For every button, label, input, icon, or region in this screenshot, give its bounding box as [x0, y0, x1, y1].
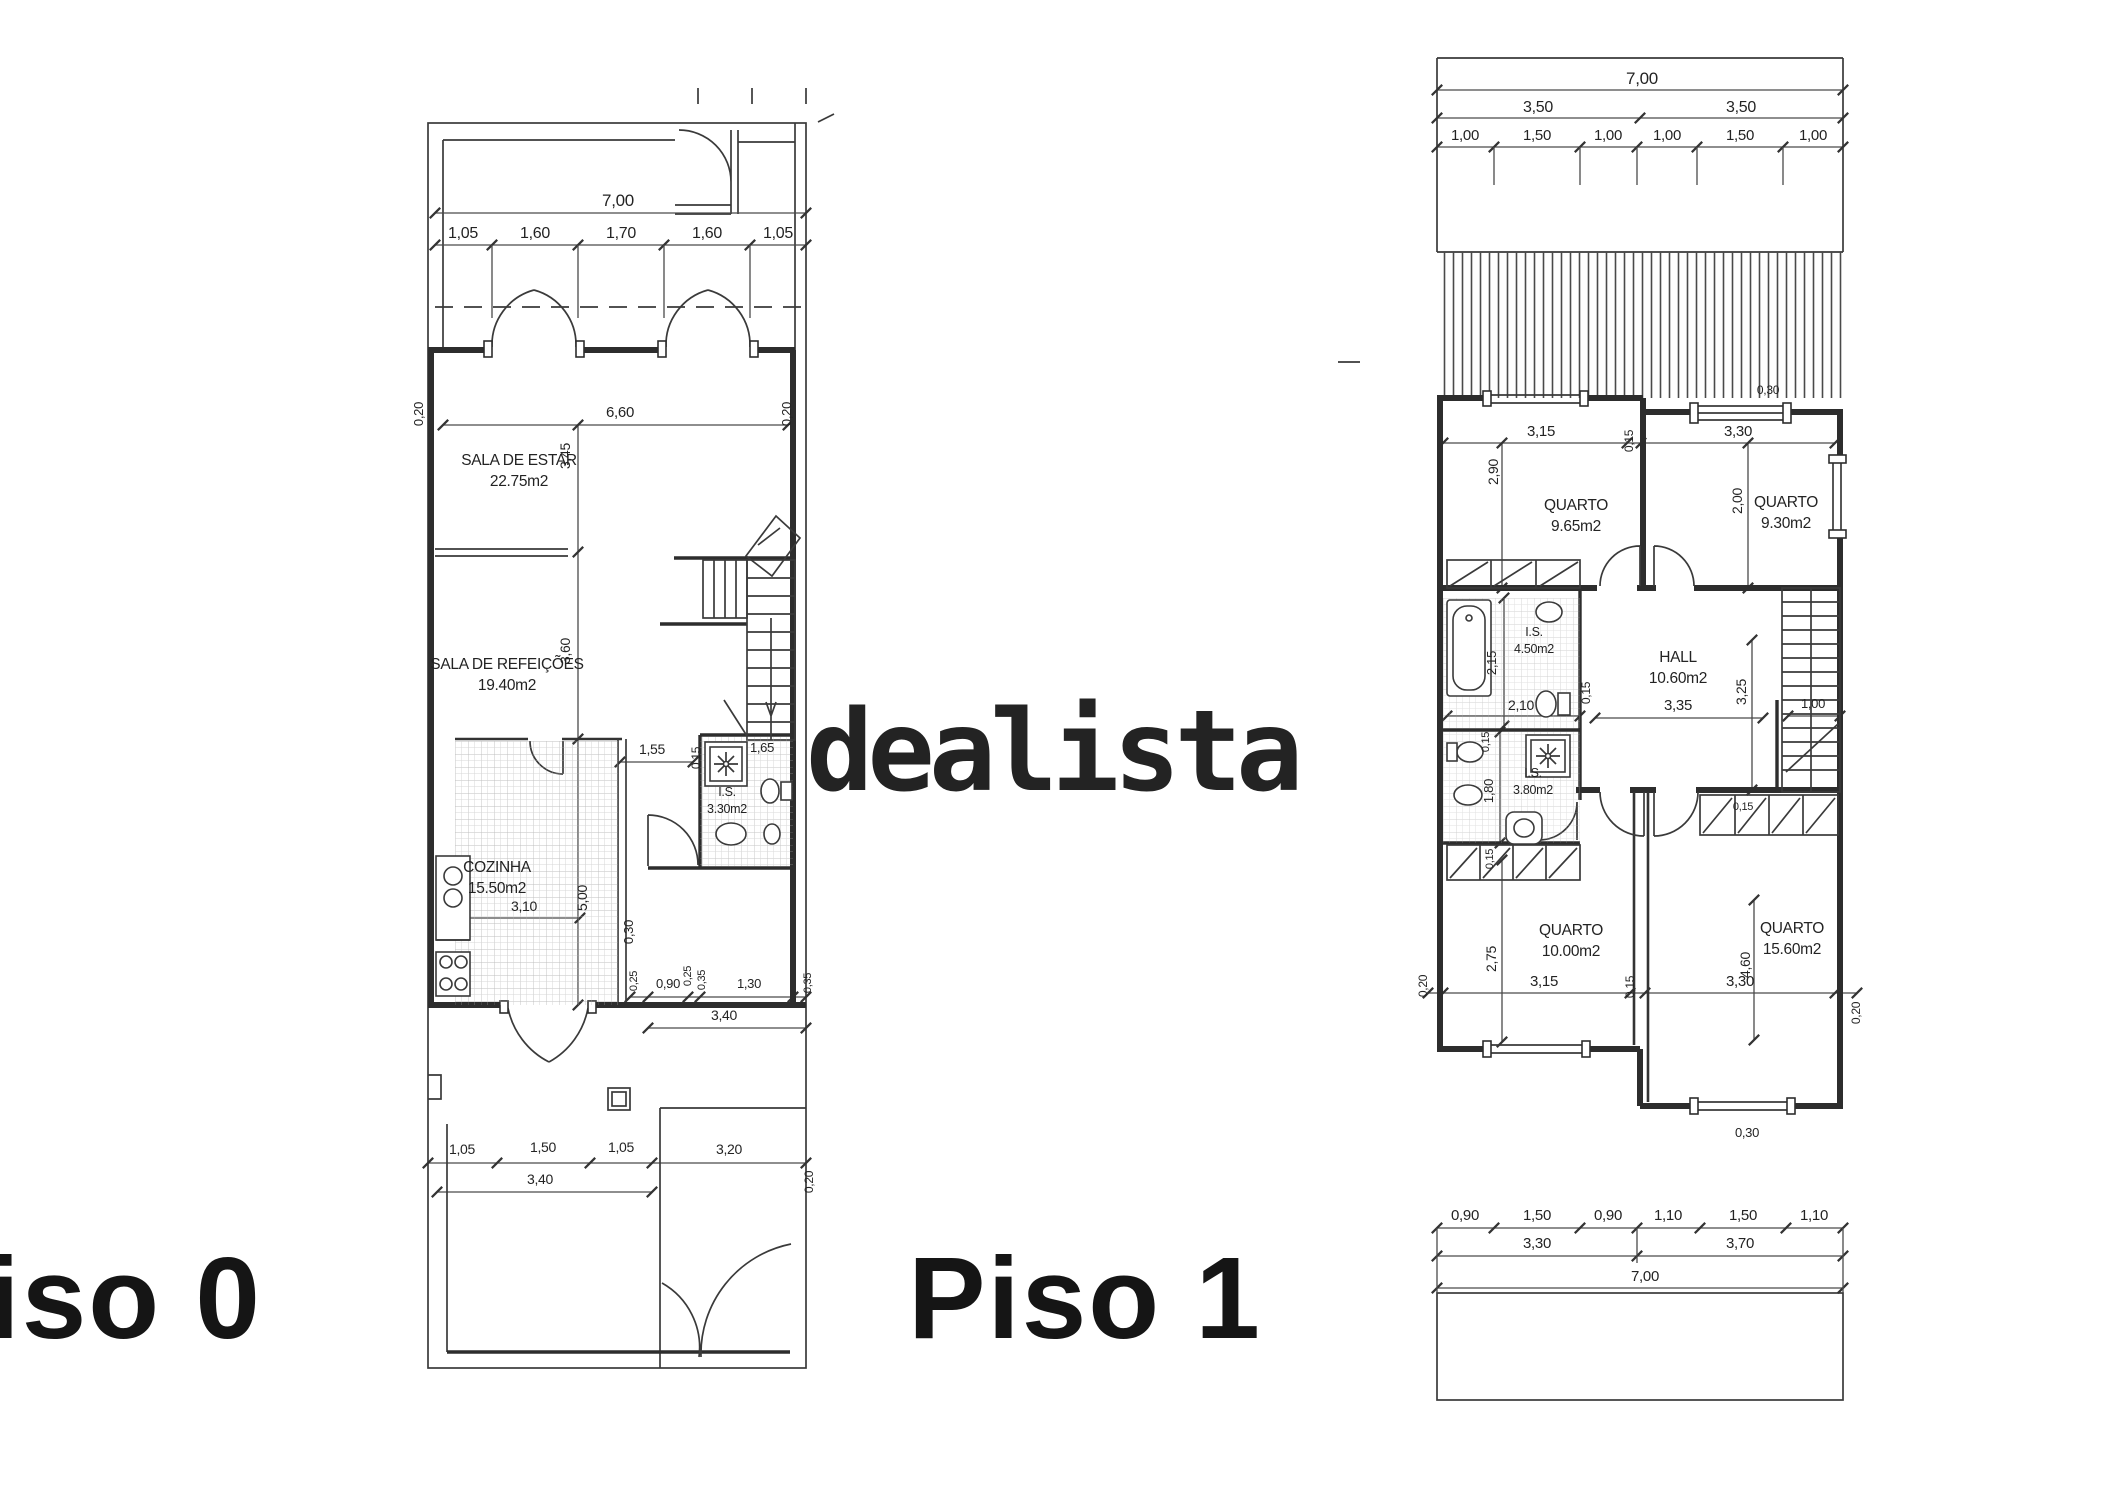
dimension-label: 0,20 — [802, 1170, 816, 1193]
room-name-label: SALA DE ESTAR — [461, 452, 577, 469]
dimension-label: 0,15 — [689, 746, 703, 769]
dimension-label: 0,90 — [1451, 1207, 1479, 1224]
dimension-label: 1,00 — [1801, 696, 1825, 711]
dimension-label: 3,30 — [1724, 423, 1752, 440]
dimension-label: 3,40 — [527, 1171, 554, 1187]
dimension-label: 0,15 — [1733, 801, 1753, 813]
room-area-label: 19.40m2 — [478, 677, 536, 694]
dimension-label: 7,00 — [1631, 1268, 1659, 1285]
dimension-label: 3,15 — [1527, 423, 1555, 440]
room-area-label: 9.30m2 — [1761, 515, 1811, 532]
dimension-label: 1,60 — [692, 225, 722, 242]
dimension-label: 1,30 — [737, 976, 761, 991]
dimension-label: 3,50 — [1523, 99, 1553, 116]
room-name-label: QUARTO — [1754, 494, 1818, 511]
piso0-plan: 7,001,051,601,701,601,050,206,600,203,45… — [411, 88, 834, 1368]
dimension-label: 0,30 — [1757, 383, 1780, 397]
room-area-label: 4.50m2 — [1514, 642, 1554, 656]
room-name-label: QUARTO — [1539, 922, 1603, 939]
dimension-label: 0,25 — [628, 971, 640, 991]
dimension-label: 3,70 — [1726, 1235, 1754, 1252]
dimension-label: 1,50 — [1726, 127, 1754, 144]
dimension-label: 1,00 — [1653, 127, 1681, 144]
dimension-label: 0,30 — [1735, 1125, 1759, 1140]
dimension-label: 1,10 — [1800, 1207, 1828, 1224]
dimension-label: 0,90 — [656, 976, 680, 991]
dimension-label: 1,80 — [1481, 779, 1496, 803]
dimension-label: 1,05 — [608, 1139, 635, 1155]
dimension-label: 2,00 — [1729, 487, 1745, 514]
dimension-label: 3,15 — [1530, 973, 1558, 990]
dimension-label: 0,15 — [1623, 975, 1637, 998]
dimension-label: 0,25 — [682, 966, 694, 986]
piso0-garden — [428, 1075, 806, 1368]
dimension-label: 7,00 — [602, 191, 634, 210]
dimension-label: 6,60 — [606, 404, 634, 421]
dimension-label: 0,15 — [1579, 681, 1593, 704]
room-name-label: I.S. — [1524, 766, 1542, 780]
dimension-label: 0,30 — [621, 920, 636, 944]
dimension-label: 3,50 — [1726, 99, 1756, 116]
dimension-label: 1,50 — [1523, 127, 1551, 144]
dimension-label: 3,10 — [511, 898, 538, 914]
dimension-label: 5,00 — [574, 884, 590, 911]
dimension-label: 1,00 — [1451, 127, 1479, 144]
dimension-label: 3,35 — [1664, 697, 1692, 714]
floorplan-image: 7,001,051,601,701,601,050,206,600,203,45… — [0, 0, 2114, 1510]
dimension-label: 1,05 — [763, 225, 793, 242]
dimension-label: 2,75 — [1483, 945, 1499, 972]
room-area-label: 15.50m2 — [468, 880, 526, 897]
room-name-label: HALL — [1659, 649, 1697, 666]
piso1-stairs — [1782, 588, 1840, 792]
piso0-stairs — [703, 560, 795, 740]
room-area-label: 10.60m2 — [1649, 670, 1707, 687]
dimension-label: 1,50 — [1729, 1207, 1757, 1224]
dimension-label: 2,10 — [1508, 697, 1535, 713]
piso0-dimension-lines — [428, 213, 806, 1192]
floorplan-drawing: 7,001,051,601,701,601,050,206,600,203,45… — [0, 0, 2114, 1510]
floor-title-piso0: Piso 0 — [0, 1233, 262, 1363]
dimension-label: 3,30 — [1523, 1235, 1551, 1252]
dimension-label: 2,90 — [1485, 458, 1501, 485]
dimension-label: 7,00 — [1626, 69, 1658, 88]
room-area-label: 10.00m2 — [1542, 943, 1600, 960]
dimension-label: 0,35 — [802, 973, 814, 993]
roof-hatch — [1437, 252, 1843, 398]
dimension-label: 0,90 — [1594, 1207, 1622, 1224]
dimension-label: 0,20 — [779, 402, 794, 426]
dimension-label: 2,15 — [1484, 651, 1499, 675]
idealista-watermark: dealista — [806, 687, 1297, 817]
dimension-label: 0,20 — [1416, 974, 1430, 997]
dimension-label: 0,15 — [1622, 429, 1636, 452]
dimension-label: 3,40 — [711, 1007, 738, 1023]
dimension-label: 1,60 — [520, 225, 550, 242]
piso0-boundary — [428, 88, 834, 1368]
room-name-label: I.S. — [1525, 625, 1543, 639]
piso0-entry-door — [675, 130, 738, 214]
dimension-label: 1,00 — [1594, 127, 1622, 144]
room-area-label: 3.30m2 — [707, 802, 747, 816]
room-name-label: I.S. — [718, 785, 736, 799]
dimension-label: 0,15 — [1484, 849, 1496, 869]
room-area-label: 3.80m2 — [1513, 783, 1553, 797]
dimension-label: 1,50 — [1523, 1207, 1551, 1224]
room-area-label: 9.65m2 — [1551, 518, 1601, 535]
dimension-label: 0,20 — [411, 402, 426, 426]
dimension-label: 4,60 — [1737, 951, 1753, 978]
room-area-label: 22.75m2 — [490, 473, 548, 490]
dimension-label: 3,20 — [716, 1141, 743, 1157]
room-name-label: SALA DE REFEIÇÕES — [430, 656, 583, 673]
dimension-label: 1,05 — [449, 1141, 476, 1157]
dimension-label: 3,25 — [1733, 678, 1749, 705]
dimension-label: 1,70 — [606, 225, 636, 242]
piso1-plan: 7,003,503,501,001,501,001,001,501,000,30… — [1338, 58, 1863, 1400]
dimension-label: 0,15 — [1480, 732, 1492, 752]
floor-title-piso1: Piso 1 — [908, 1233, 1262, 1363]
dimension-label: 1,10 — [1654, 1207, 1682, 1224]
room-name-label: QUARTO — [1760, 920, 1824, 937]
piso1-boundary — [1338, 58, 1843, 1400]
piso0-kitchen-fixtures — [436, 856, 470, 996]
room-name-label: COZINHA — [463, 859, 532, 876]
room-name-label: QUARTO — [1544, 497, 1608, 514]
dimension-label: 0,20 — [1849, 1001, 1863, 1024]
room-area-label: 15.60m2 — [1763, 941, 1821, 958]
dimension-label: 1,00 — [1799, 127, 1827, 144]
dimension-label: 1,55 — [639, 741, 666, 757]
dimension-label: 0,35 — [696, 970, 708, 990]
dimension-label: 1,05 — [448, 225, 478, 242]
dimension-label: 1,65 — [750, 740, 774, 755]
dimension-label: 1,50 — [530, 1139, 557, 1155]
